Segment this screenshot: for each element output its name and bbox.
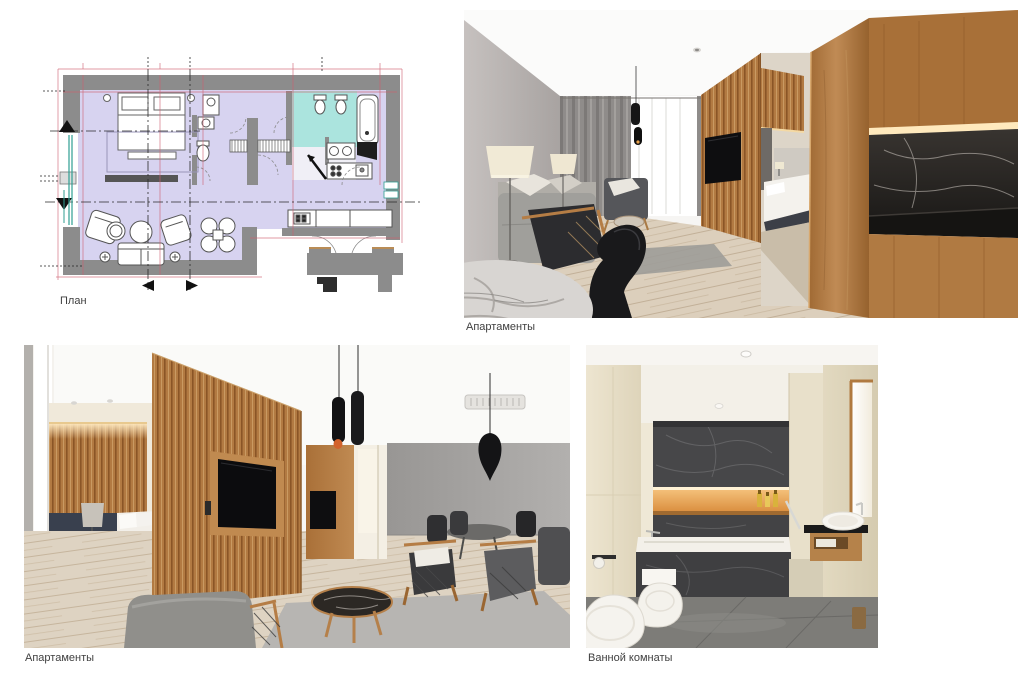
tv-second bbox=[310, 491, 336, 529]
toiletry-bottles bbox=[757, 490, 778, 507]
corridor bbox=[354, 445, 387, 559]
tv bbox=[705, 132, 741, 184]
marble-wall bbox=[653, 421, 789, 490]
floor-plan-drawing bbox=[20, 55, 430, 310]
lighted-niche bbox=[653, 487, 789, 515]
right-wall bbox=[387, 443, 570, 535]
apartment-bedroom-caption: Апартаменты bbox=[25, 652, 94, 665]
ceiling-spotlight bbox=[741, 351, 751, 357]
plan-bathtub bbox=[357, 95, 378, 145]
ceiling-vent bbox=[465, 395, 525, 409]
bidet bbox=[638, 569, 683, 627]
bathroom-render-figure: Ванной комнаты bbox=[586, 345, 878, 648]
bed bbox=[764, 174, 811, 232]
plan-bed bbox=[118, 93, 185, 159]
floor-plan-caption: План bbox=[60, 295, 87, 308]
floor-plan-figure: План bbox=[20, 55, 430, 310]
plan-axis-marker-right bbox=[186, 280, 198, 291]
tv-framed bbox=[205, 451, 284, 537]
plan-closets bbox=[230, 140, 290, 152]
bedroom-glimpse bbox=[761, 53, 811, 306]
ceiling bbox=[586, 345, 878, 367]
bathroom-render bbox=[586, 345, 878, 648]
plan-double-sink bbox=[327, 143, 355, 159]
plan-kitchen-lower bbox=[288, 210, 392, 227]
apartment-living-caption: Апартаменты bbox=[466, 321, 535, 334]
apartment-bedroom-render bbox=[24, 345, 570, 648]
plan-kitchen-hob bbox=[327, 163, 372, 179]
apartment-bedroom-render-figure: Апартаменты bbox=[24, 345, 570, 648]
toilet bbox=[586, 595, 644, 648]
right-window bbox=[850, 381, 873, 517]
lower-cabinet bbox=[869, 234, 1018, 318]
wood-console-volume bbox=[306, 445, 354, 559]
kitchenette bbox=[869, 10, 1018, 318]
marble-backsplash bbox=[869, 129, 1018, 220]
ceiling-spotlight bbox=[71, 401, 77, 405]
presentation-page: План bbox=[0, 0, 1034, 682]
apartment-living-render-figure: Апартаменты bbox=[464, 10, 1018, 318]
marble-wall-lower bbox=[653, 515, 789, 538]
waste-bin bbox=[852, 607, 866, 629]
apartment-living-render bbox=[464, 10, 1018, 318]
wood-wardrobe-volume bbox=[809, 18, 869, 318]
corridor-floor bbox=[789, 559, 823, 601]
plan-tv-console bbox=[105, 175, 178, 182]
plan-stair-step bbox=[317, 277, 337, 292]
bathroom-caption: Ванной комнаты bbox=[588, 652, 672, 665]
